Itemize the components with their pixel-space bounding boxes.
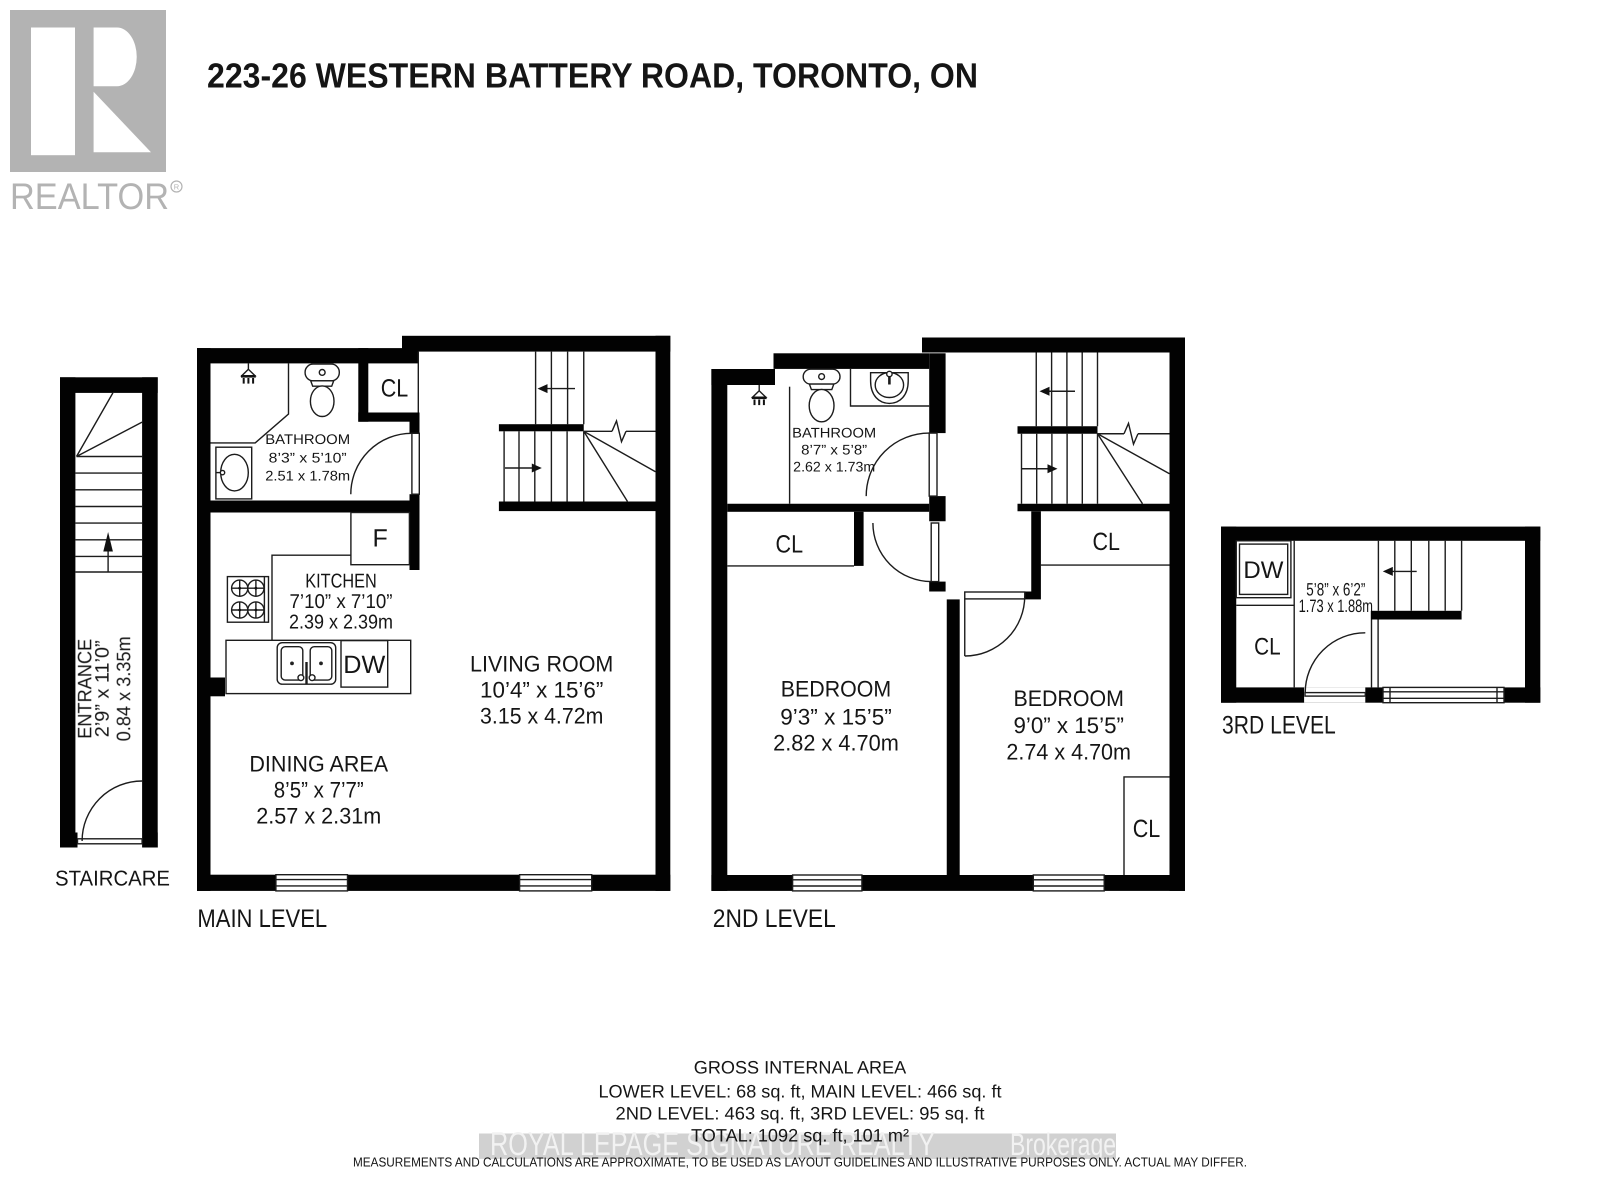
svg-text:9’3” x 15’5”: 9’3” x 15’5” [780, 704, 892, 729]
svg-text:LIVING ROOM: LIVING ROOM [470, 652, 613, 677]
svg-text:2.57 x 2.31m: 2.57 x 2.31m [256, 804, 381, 829]
svg-text:KITCHEN: KITCHEN [305, 571, 377, 593]
svg-text:LOWER LEVEL: 68 sq. ft, MAIN L: LOWER LEVEL: 68 sq. ft, MAIN LEVEL: 466 … [599, 1082, 1002, 1102]
svg-text:GROSS INTERNAL AREA: GROSS INTERNAL AREA [694, 1058, 907, 1078]
svg-text:8’5” x 7’7”: 8’5” x 7’7” [274, 778, 364, 803]
svg-text:BATHROOM: BATHROOM [792, 424, 876, 440]
svg-text:STAIRCARE: STAIRCARE [55, 867, 170, 891]
svg-text:R: R [174, 183, 180, 192]
svg-text:10’4” x 15’6”: 10’4” x 15’6” [480, 678, 603, 703]
svg-text:0.84 x 3.35m: 0.84 x 3.35m [113, 636, 135, 741]
svg-text:2ND LEVEL: 463 sq. ft, 3RD LEV: 2ND LEVEL: 463 sq. ft, 3RD LEVEL: 95 sq.… [616, 1104, 985, 1124]
svg-text:BEDROOM: BEDROOM [1013, 686, 1124, 711]
svg-text:MAIN LEVEL: MAIN LEVEL [197, 905, 327, 933]
svg-text:TOTAL: 1092 sq. ft, 101 m²: TOTAL: 1092 sq. ft, 101 m² [691, 1126, 909, 1146]
svg-text:BATHROOM: BATHROOM [265, 431, 350, 447]
svg-text:2.51 x 1.78m: 2.51 x 1.78m [265, 468, 350, 484]
svg-text:7’10” x 7’10”: 7’10” x 7’10” [290, 591, 393, 613]
svg-text:2’9” x 11’0”: 2’9” x 11’0” [92, 640, 114, 737]
svg-text:2.74 x 4.70m: 2.74 x 4.70m [1006, 740, 1131, 765]
svg-text:DW: DW [343, 651, 385, 679]
svg-text:2ND LEVEL: 2ND LEVEL [713, 905, 836, 933]
svg-text:2.62 x 1.73m: 2.62 x 1.73m [793, 458, 875, 474]
svg-text:CL: CL [1092, 528, 1120, 556]
svg-text:BEDROOM: BEDROOM [781, 676, 891, 701]
svg-text:3.15 x 4.72m: 3.15 x 4.72m [480, 704, 603, 729]
svg-text:9’0” x 15’5”: 9’0” x 15’5” [1013, 713, 1124, 738]
svg-text:CL: CL [1133, 815, 1161, 843]
svg-text:CL: CL [381, 375, 409, 403]
svg-text:CL: CL [1254, 634, 1281, 661]
svg-text:F: F [372, 524, 387, 552]
svg-text:DW: DW [1243, 557, 1283, 584]
svg-text:8’7” x 5’8”: 8’7” x 5’8” [801, 442, 867, 458]
svg-text:8’3” x 5’10”: 8’3” x 5’10” [269, 449, 347, 465]
svg-text:3RD LEVEL: 3RD LEVEL [1222, 711, 1336, 739]
svg-text:2.82 x 4.70m: 2.82 x 4.70m [773, 730, 899, 755]
svg-text:2.39 x 2.39m: 2.39 x 2.39m [289, 612, 393, 634]
svg-text:REALTOR: REALTOR [10, 176, 169, 217]
svg-text:1.73 x 1.88m: 1.73 x 1.88m [1299, 596, 1373, 616]
svg-text:223-26 WESTERN BATTERY ROAD, T: 223-26 WESTERN BATTERY ROAD, TORONTO, ON [207, 57, 978, 96]
svg-text:MEASUREMENTS AND CALCULATIONS: MEASUREMENTS AND CALCULATIONS ARE APPROX… [353, 1155, 1247, 1170]
svg-text:CL: CL [776, 531, 804, 559]
svg-text:DINING AREA: DINING AREA [249, 752, 388, 777]
